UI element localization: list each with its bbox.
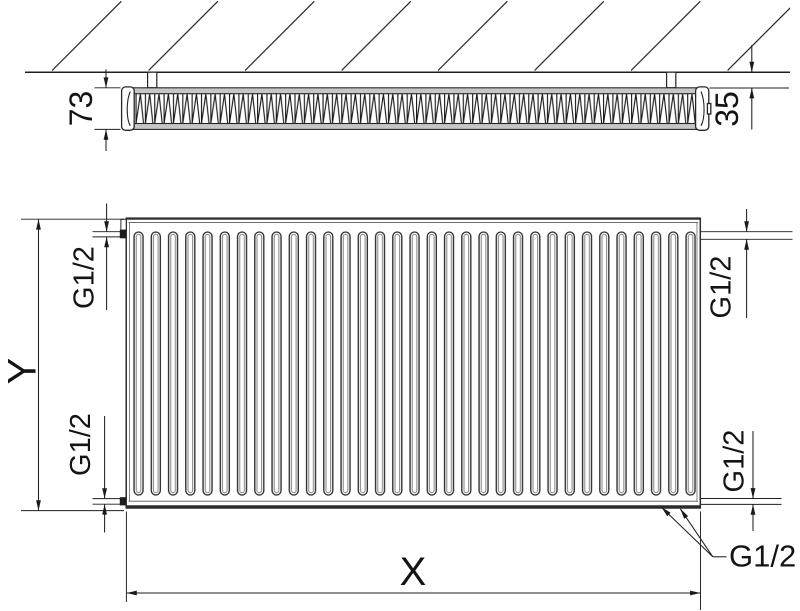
- port-bottom-left: [120, 497, 126, 505]
- thread-bottom-label: G1/2: [729, 539, 796, 574]
- mounting-bracket-left: [148, 72, 157, 88]
- drawing-canvas: 73 35: [0, 0, 800, 611]
- thread-top-right-label: G1/2: [706, 256, 738, 319]
- dimension-height-y: Y: [1, 219, 125, 510]
- wall-hatching: [25, 0, 790, 72]
- radiator-technical-drawing: 73 35: [0, 0, 800, 611]
- radiator-front-plate: [133, 124, 698, 130]
- dimension-thread-bottom-left: G1/2: [65, 413, 105, 532]
- radiator-back-plate: [133, 88, 698, 94]
- thread-bottom-left-label: G1/2: [65, 413, 97, 476]
- mounting-bracket-right: [667, 72, 676, 88]
- dimension-depth-73: 73: [63, 70, 121, 152]
- port-top-left: [120, 230, 126, 239]
- top-section-view: 73 35: [25, 0, 790, 151]
- convector-fins: [135, 94, 696, 123]
- wall-clearance-dimension-label: 35: [709, 91, 745, 127]
- dimension-width-x: X: [126, 512, 700, 611]
- height-dimension-label: Y: [1, 358, 45, 385]
- front-view: Y X G1/2 G1/2 G1/2: [1, 204, 797, 611]
- thread-bottom-right-side-label: G1/2: [719, 430, 751, 493]
- depth-dimension-label: 73: [63, 91, 99, 127]
- width-dimension-label: X: [400, 550, 427, 594]
- dimension-thread-bottom-leader: G1/2: [662, 507, 797, 573]
- thread-top-left-label: G1/2: [69, 246, 101, 309]
- dimension-thread-bottom-right-side: G1/2: [719, 430, 754, 531]
- dimension-thread-top-right: G1/2: [706, 209, 747, 318]
- end-cap-left: [122, 87, 135, 130]
- panel-grooves: [130, 227, 699, 506]
